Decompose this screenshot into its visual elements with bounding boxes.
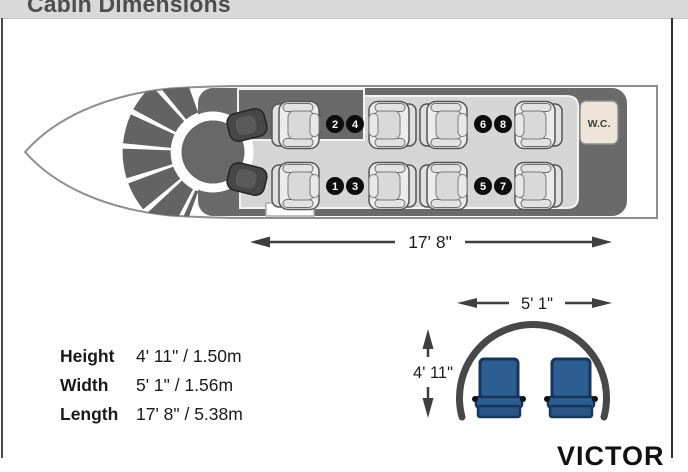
seat-plan — [515, 102, 562, 149]
spec-value: 5' 1" / 1.56m — [136, 371, 233, 400]
height-dimension-label: 4' 11" — [413, 364, 453, 382]
length-dimension-label: 17' 8" — [408, 232, 452, 252]
seat-number-badge: 2 — [326, 115, 344, 133]
seat-plan — [272, 102, 319, 149]
svg-text:7: 7 — [500, 181, 506, 193]
cross-section: 5' 1" 4' 11" — [413, 295, 612, 418]
seat-plan — [420, 102, 467, 149]
seat-number-badge: 4 — [346, 115, 364, 133]
seat-number-badge: 5 — [474, 177, 492, 195]
seat-plan — [369, 102, 416, 149]
lavatory-label: W.C. — [588, 118, 611, 130]
svg-text:4: 4 — [352, 119, 359, 131]
svg-text:1: 1 — [332, 181, 338, 193]
spec-label: Width — [60, 371, 136, 400]
svg-text:3: 3 — [352, 181, 358, 193]
width-dimension-label: 5' 1" — [521, 295, 553, 313]
seat-plan — [369, 163, 416, 210]
svg-text:8: 8 — [500, 119, 506, 131]
seat-number-badge: 8 — [494, 115, 512, 133]
seat-plan — [420, 163, 467, 210]
spec-value: 17' 8" / 5.38m — [136, 400, 243, 429]
length-dimension: 17' 8" — [250, 232, 612, 252]
lavatory: W.C. — [580, 101, 618, 144]
seat-front — [544, 359, 598, 417]
seat-plan — [515, 163, 562, 210]
svg-text:5: 5 — [480, 181, 486, 193]
seat-number-badge: 1 — [326, 177, 344, 195]
seat-front — [472, 359, 526, 417]
width-dimension: 5' 1" — [457, 295, 612, 313]
spec-row-height: Height 4' 11" / 1.50m — [60, 342, 243, 371]
seat-number-badge: 7 — [494, 177, 512, 195]
spec-label: Height — [60, 342, 136, 371]
seat-number-badge: 3 — [346, 177, 364, 195]
spec-label: Length — [60, 400, 136, 429]
svg-text:2: 2 — [332, 119, 338, 131]
header-bar: Cabin Dimensions — [0, 0, 688, 19]
seat-plan — [272, 163, 319, 210]
plan-view: W.C. 2 4 6 8 1 — [25, 86, 657, 252]
page-title: Cabin Dimensions — [27, 0, 231, 18]
spec-row-length: Length 17' 8" / 5.38m — [60, 400, 243, 429]
spec-value: 4' 11" / 1.50m — [136, 342, 242, 371]
brand-logo: VICTOR — [557, 441, 665, 472]
svg-text:6: 6 — [480, 119, 486, 131]
height-dimension: 4' 11" — [413, 329, 453, 418]
spec-table: Height 4' 11" / 1.50m Width 5' 1" / 1.56… — [60, 342, 243, 429]
seat-number-badge: 6 — [474, 115, 492, 133]
spec-row-width: Width 5' 1" / 1.56m — [60, 371, 243, 400]
